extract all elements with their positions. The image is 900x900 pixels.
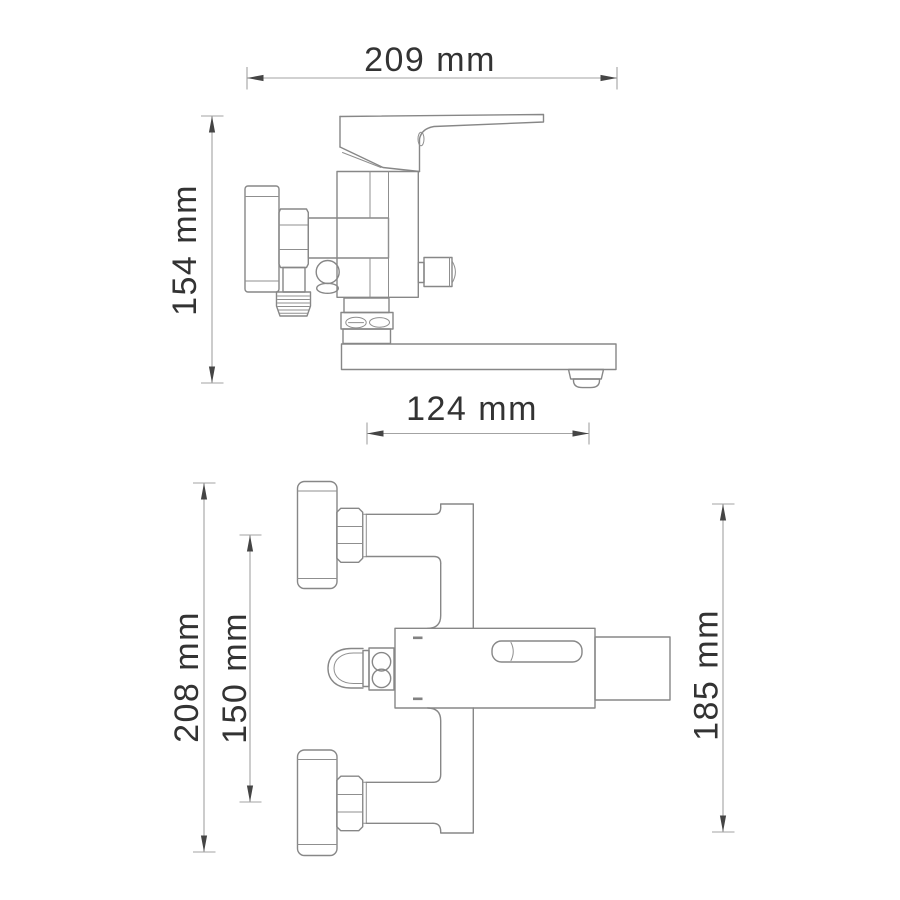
spout	[342, 344, 617, 370]
nut-neck	[283, 268, 305, 293]
arrow-down-icon	[720, 816, 726, 833]
arrow-up-icon	[201, 483, 207, 500]
lower-escutcheon	[298, 750, 338, 856]
dim-label-total-height: 208 mm	[168, 611, 206, 743]
dim-total-height: 208 mm	[168, 483, 216, 852]
mounting-bracket	[428, 504, 474, 833]
threaded-outlet	[277, 292, 311, 316]
faucet-front-profile	[298, 482, 671, 856]
dim-label-width: 209 mm	[364, 41, 496, 79]
check-valve-detail	[316, 261, 339, 294]
lower-pipe	[366, 782, 433, 823]
dim-right-height: 185 mm	[688, 504, 735, 832]
body-marks	[413, 638, 423, 699]
arrow-right-icon	[601, 75, 618, 81]
arrow-up-icon	[247, 535, 253, 552]
wall-flange	[245, 186, 279, 292]
mixer-body-front	[395, 628, 595, 708]
dim-spout-reach: 124 mm	[367, 390, 589, 445]
faucet-technical-drawing: 209 mm 154 mm 124 mm	[0, 0, 900, 900]
dim-label-spout: 124 mm	[406, 390, 538, 428]
faucet-side-profile	[245, 115, 616, 388]
upper-escutcheon	[298, 482, 338, 589]
hex-nut	[279, 209, 308, 268]
side-view: 209 mm 154 mm 124 mm	[166, 41, 617, 445]
upper-hex-nut	[337, 508, 367, 562]
arrow-right-icon	[573, 430, 590, 436]
dim-label-centers: 150 mm	[216, 612, 254, 744]
mixer-body	[337, 172, 418, 298]
dim-label-height: 154 mm	[166, 184, 204, 316]
handle-lever	[340, 115, 544, 172]
spout-front	[595, 637, 670, 700]
dim-connection-centers: 150 mm	[216, 535, 262, 802]
arrow-up-icon	[209, 116, 215, 133]
upper-pipe	[366, 508, 440, 564]
front-view: 208 mm 150 mm 185 mm	[168, 482, 735, 856]
technical-drawing-page: 209 mm 154 mm 124 mm	[0, 0, 900, 900]
supply-pipe	[308, 218, 388, 258]
lower-hex-nut	[337, 776, 367, 831]
cartridge-stack	[341, 298, 393, 344]
hose-connector	[328, 648, 394, 690]
diverter-knob	[418, 258, 455, 287]
dim-width: 209 mm	[247, 41, 617, 90]
arrow-down-icon	[247, 786, 253, 803]
arrow-up-icon	[720, 504, 726, 521]
dim-label-right-height: 185 mm	[688, 609, 726, 741]
arrow-down-icon	[201, 836, 207, 853]
aerator	[569, 370, 604, 388]
arrow-left-icon	[247, 75, 264, 81]
handle-top	[492, 641, 582, 662]
dim-height: 154 mm	[166, 116, 224, 383]
thread-lines	[278, 296, 310, 313]
arrow-left-icon	[367, 430, 384, 436]
arrow-down-icon	[209, 367, 215, 384]
